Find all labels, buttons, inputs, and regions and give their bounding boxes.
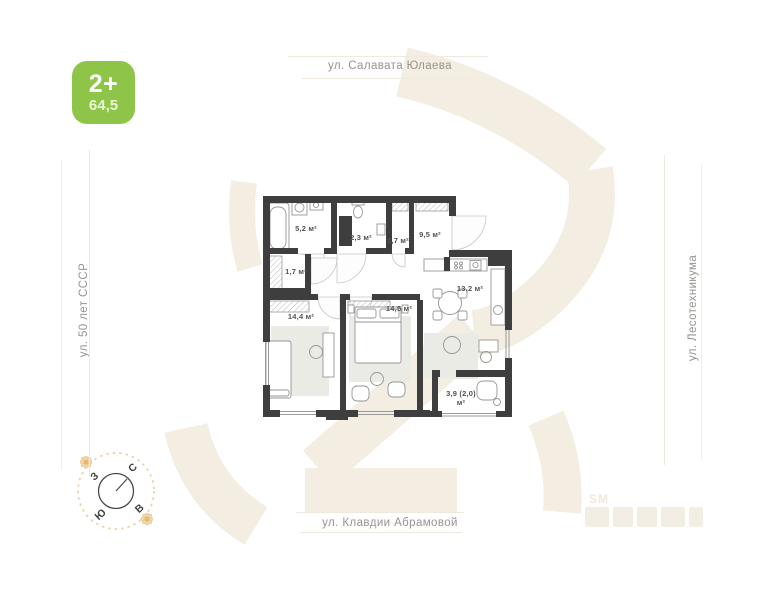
wc-sink: [377, 224, 385, 235]
apartment-badge: 2+ 64,5: [72, 61, 135, 124]
counter-right: [491, 269, 505, 325]
badge-rooms-label: 2+: [89, 71, 119, 97]
road-line: [89, 150, 90, 475]
balcony-chair: [477, 381, 497, 400]
road-line: [664, 155, 665, 465]
desk: [323, 333, 334, 377]
street-label-bottom: ул. Клавдии Абрамовой: [250, 515, 530, 531]
chair: [433, 311, 442, 320]
armchair: [388, 382, 405, 397]
road-line: [300, 532, 462, 533]
road-line: [61, 160, 62, 470]
work-desk: [479, 340, 498, 352]
badge-total-area: 64,5: [89, 97, 118, 114]
room-label-bedroom-left: 14,4 м²: [288, 312, 314, 321]
road-line: [701, 165, 702, 460]
door-toilet: [337, 254, 366, 283]
road-line: [288, 56, 488, 57]
road-line: [296, 512, 464, 513]
kitchen-sink: [470, 261, 481, 271]
room-label-bathroom: 5,2 м²: [295, 224, 317, 233]
daisy-icon: [141, 513, 153, 525]
room-label-bedroom-middle: 14,5 м²: [386, 304, 412, 313]
chair: [433, 289, 442, 298]
road-line: [302, 78, 474, 79]
chair: [458, 311, 467, 320]
door-bedroom-left: [318, 297, 340, 319]
street-label-top: ул. Салавата Юлаева: [250, 58, 530, 74]
room-label-closet-top: 1,7 м²: [387, 236, 409, 245]
toilet-bowl: [354, 206, 363, 218]
door-closet-left: [311, 258, 337, 284]
room-label-hallway: 9,5 м²: [419, 230, 441, 239]
watermark-sm-text: SM: [589, 492, 609, 506]
door-entrance: [452, 216, 486, 250]
daisy-icon: [80, 456, 92, 468]
room-label-balcony-line2: м²: [457, 398, 466, 407]
street-label-right: ул. Лесотехникума: [685, 198, 701, 418]
room-label-kitchen-living: 13,2 м²: [457, 284, 483, 293]
room-label-balcony: 3,9 (2,0): [446, 389, 476, 398]
room-label-closet-left: 1,7 м²: [285, 267, 307, 276]
watermark-logotype-blocks: [585, 507, 703, 527]
room-label-toilet: 2,3 м²: [350, 233, 372, 242]
door-closet-top: [392, 254, 405, 267]
armchair: [352, 386, 369, 401]
